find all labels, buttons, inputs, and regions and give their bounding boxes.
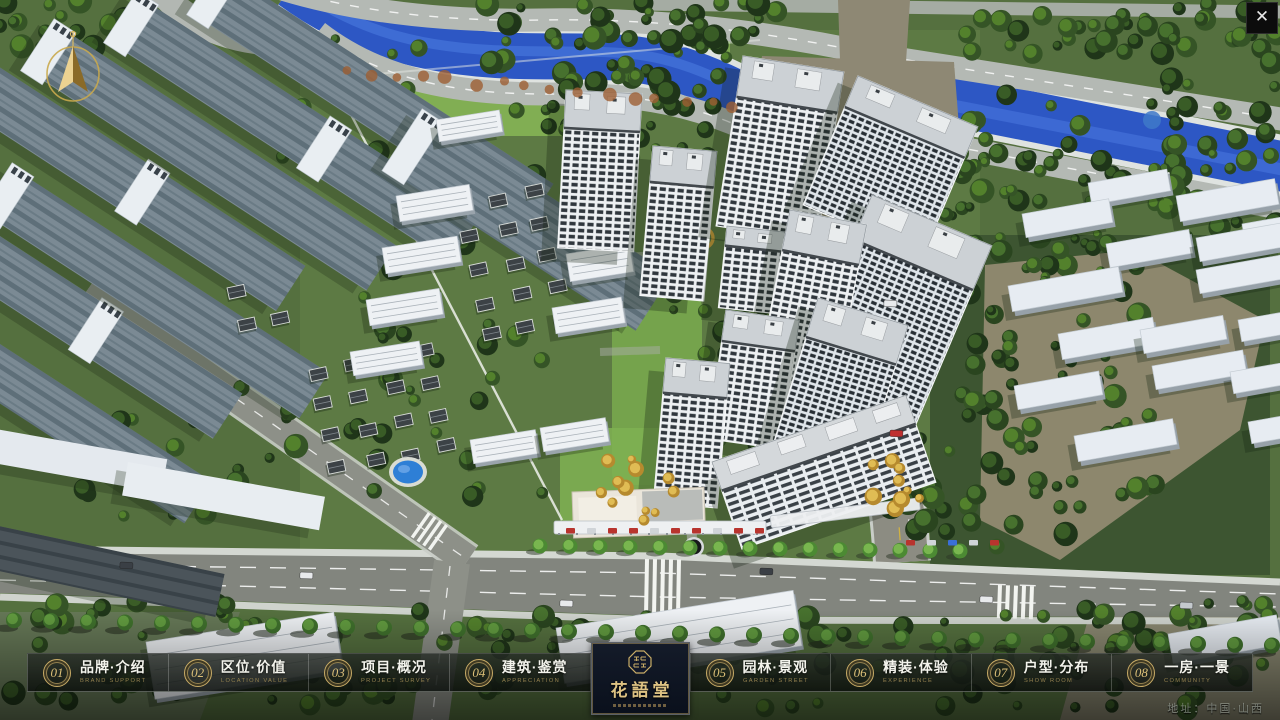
- menu-item-number-badge: 02: [184, 659, 212, 687]
- menu-item-02[interactable]: 02区位·价值LOCATION VALUE: [169, 653, 310, 692]
- menu-item-number-badge: 03: [324, 659, 352, 687]
- menu-item-06[interactable]: 06精装·体验EXPERIENCE: [831, 653, 972, 692]
- brand-seal-icon: [628, 650, 652, 674]
- menu-item-number-badge: 07: [987, 659, 1015, 687]
- menu-item-label: 精装·体验: [883, 660, 949, 675]
- menu-item-07[interactable]: 07户型·分布SHOW ROOM: [972, 653, 1113, 692]
- menu-item-number-badge: 08: [1127, 659, 1155, 687]
- menu-item-sublabel: SHOW ROOM: [1024, 678, 1078, 684]
- menu-item-label: 区位·价值: [221, 660, 303, 675]
- menu-item-label: 品牌·介绍: [80, 660, 161, 675]
- brand-logo-tagline-rule: [613, 704, 667, 707]
- menu-item-label: 园林·景观: [743, 660, 823, 675]
- menu-item-08[interactable]: 08一房·一景COMMUNITY: [1112, 653, 1253, 692]
- menu-item-number-badge: 06: [846, 659, 874, 687]
- menu-item-sublabel: LOCATION VALUE: [221, 678, 288, 684]
- menu-item-sublabel: BRAND SUPPORT: [80, 678, 146, 684]
- menu-item-number-badge: 05: [706, 659, 734, 687]
- menu-item-sublabel: COMMUNITY: [1164, 678, 1218, 684]
- brand-logo-panel: 花語堂: [591, 642, 690, 715]
- menu-item-04[interactable]: 04建筑·鉴赏APPRECIATION: [450, 653, 591, 692]
- menu-spacer-right: [1253, 653, 1280, 692]
- menu-item-sublabel: APPRECIATION: [502, 678, 560, 684]
- close-button[interactable]: ✕: [1246, 2, 1278, 34]
- menu-item-number-badge: 04: [465, 659, 493, 687]
- menu-item-03[interactable]: 03项目·概况PROJECT SURVEY: [309, 653, 450, 692]
- masterplan-3d-view[interactable]: [0, 0, 1280, 720]
- menu-item-sublabel: PROJECT SURVEY: [361, 678, 431, 684]
- project-address: 地址：中国·山西: [1167, 700, 1264, 716]
- menu-item-sublabel: GARDEN STREET: [743, 678, 809, 684]
- menu-item-01[interactable]: 01品牌·介绍BRAND SUPPORT: [27, 653, 169, 692]
- bottom-navigation-bar: 01品牌·介绍BRAND SUPPORT02区位·价值LOCATION VALU…: [0, 653, 1280, 692]
- menu-item-number-badge: 01: [43, 659, 71, 687]
- menu-item-label: 建筑·鉴赏: [502, 660, 573, 675]
- menu-item-label: 户型·分布: [1024, 660, 1090, 675]
- sales-presentation-window: ✕ 01品牌·介绍BRAND SUPPORT02区位·价值LOCATION VA…: [0, 0, 1280, 720]
- menu-item-label: 项目·概况: [361, 660, 447, 675]
- menu-item-label: 一房·一景: [1164, 660, 1230, 675]
- menu-item-05[interactable]: 05园林·景观GARDEN STREET: [690, 653, 832, 692]
- menu-spacer-left: [0, 653, 27, 692]
- menu-item-sublabel: EXPERIENCE: [883, 678, 937, 684]
- brand-logo-title: 花語堂: [611, 676, 674, 701]
